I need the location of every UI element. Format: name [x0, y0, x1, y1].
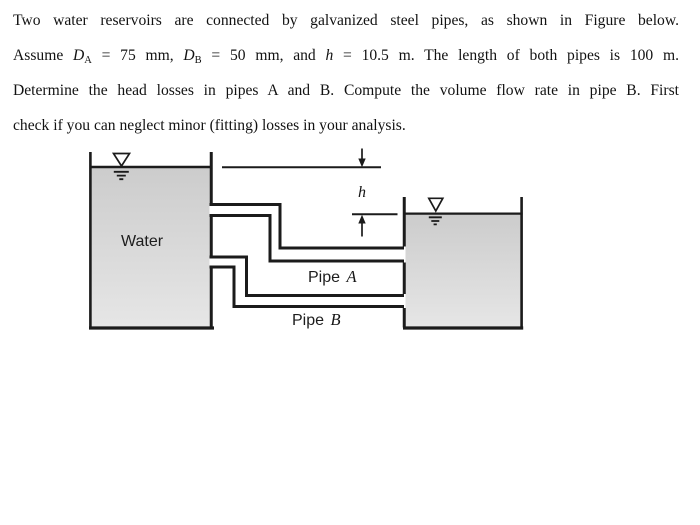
- height-dimension: h: [222, 149, 398, 237]
- pipe-b: Pipe B: [210, 257, 405, 329]
- right-reservoir: [403, 197, 523, 328]
- right-water-fill: [406, 214, 522, 328]
- down-arrow-icon: [358, 149, 365, 168]
- up-arrow-icon: [358, 215, 365, 237]
- left-tank-label: Water: [121, 233, 164, 250]
- left-reservoir: Water: [89, 152, 214, 329]
- h-label: h: [358, 184, 366, 201]
- pipe-b-bore: [210, 259, 405, 306]
- figure-two-reservoirs: Water Pipe A Pipe B h: [0, 0, 700, 525]
- pipe-a-label: Pipe A: [308, 267, 357, 286]
- pipe-b-label: Pipe B: [292, 310, 341, 329]
